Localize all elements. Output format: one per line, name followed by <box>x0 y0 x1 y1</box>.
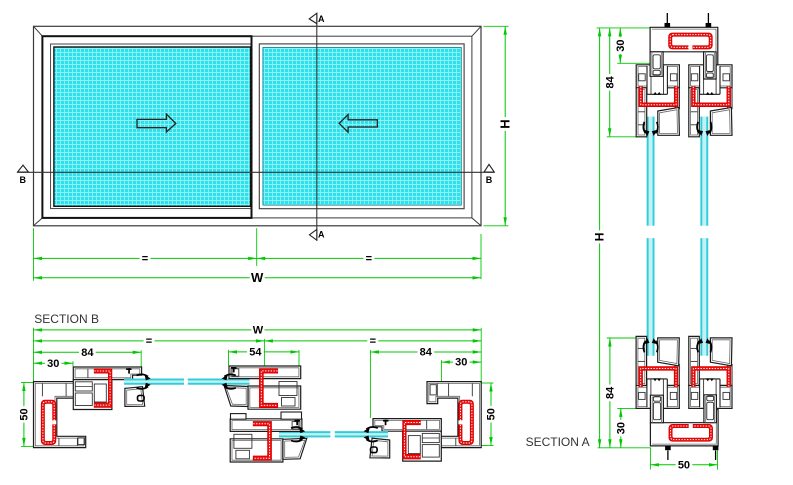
svg-text:SECTION A: SECTION A <box>526 435 590 449</box>
svg-text:30: 30 <box>47 358 59 370</box>
svg-text:W: W <box>251 270 264 285</box>
svg-text:A: A <box>318 14 325 24</box>
svg-text:30: 30 <box>615 422 627 434</box>
svg-text:=: = <box>366 253 372 265</box>
svg-text:54: 54 <box>249 347 262 359</box>
svg-text:W: W <box>253 325 264 337</box>
svg-text:84: 84 <box>420 347 433 359</box>
svg-text:30: 30 <box>615 39 627 51</box>
svg-text:84: 84 <box>605 386 617 399</box>
svg-text:50: 50 <box>486 408 498 420</box>
svg-text:84: 84 <box>604 75 616 88</box>
svg-text:=: = <box>142 253 148 265</box>
svg-text:84: 84 <box>81 347 94 359</box>
svg-text:=: = <box>146 336 152 348</box>
svg-text:50: 50 <box>19 408 31 420</box>
svg-text:B: B <box>20 175 27 185</box>
svg-text:A: A <box>318 230 325 240</box>
svg-text:B: B <box>486 175 493 185</box>
svg-text:30: 30 <box>455 357 467 369</box>
svg-text:=: = <box>370 336 376 348</box>
svg-text:50: 50 <box>678 459 690 471</box>
svg-text:H: H <box>593 233 607 242</box>
svg-text:SECTION B: SECTION B <box>34 312 99 326</box>
svg-text:H: H <box>497 119 512 128</box>
